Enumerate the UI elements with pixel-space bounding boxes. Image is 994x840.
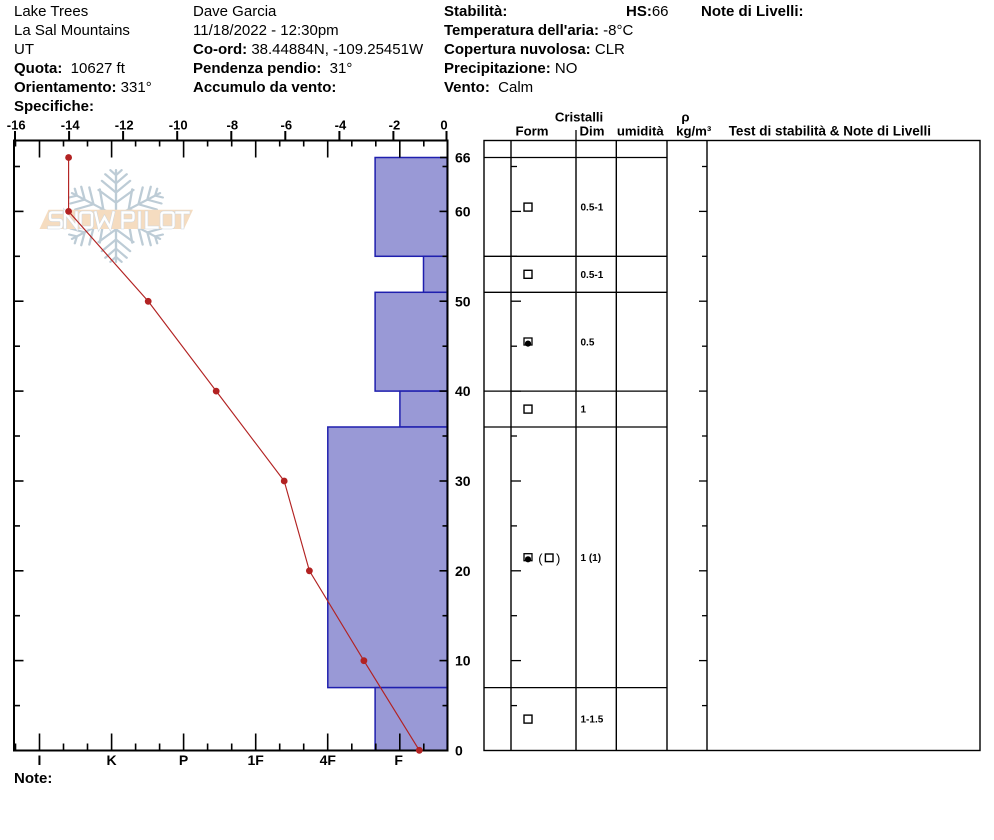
svg-text:Form: Form bbox=[516, 124, 549, 139]
svg-text:1F: 1F bbox=[248, 752, 265, 768]
svg-text:Dim: Dim bbox=[580, 124, 605, 139]
svg-text:1-1.5: 1-1.5 bbox=[581, 715, 604, 726]
svg-text:P: P bbox=[179, 752, 188, 768]
svg-text:0.5-1: 0.5-1 bbox=[581, 270, 604, 281]
svg-text:-12: -12 bbox=[115, 118, 134, 133]
svg-text:-10: -10 bbox=[169, 118, 188, 133]
svg-text:4F: 4F bbox=[320, 752, 337, 768]
svg-text:-14: -14 bbox=[61, 118, 81, 133]
svg-text:F: F bbox=[394, 752, 403, 768]
svg-text:20: 20 bbox=[455, 563, 471, 579]
svg-text:(: ( bbox=[538, 551, 543, 566]
svg-text:K: K bbox=[107, 752, 117, 768]
svg-text:60: 60 bbox=[455, 203, 471, 219]
svg-text:1 (1): 1 (1) bbox=[581, 553, 602, 564]
svg-text:-6: -6 bbox=[281, 118, 293, 133]
svg-text:-2: -2 bbox=[389, 118, 401, 133]
svg-text:0: 0 bbox=[455, 742, 463, 758]
svg-text:0.5-1: 0.5-1 bbox=[581, 203, 604, 214]
svg-text:-8: -8 bbox=[227, 118, 239, 133]
svg-text:Test di stabilità & Note di Li: Test di stabilità & Note di Livelli bbox=[729, 124, 931, 139]
svg-text:): ) bbox=[556, 551, 560, 566]
svg-text:10: 10 bbox=[455, 653, 471, 669]
svg-text:0: 0 bbox=[440, 118, 447, 133]
svg-text:50: 50 bbox=[455, 293, 471, 309]
svg-text:Cristalli: Cristalli bbox=[555, 109, 603, 124]
svg-text:kg/m³: kg/m³ bbox=[676, 124, 712, 139]
svg-text:40: 40 bbox=[455, 383, 471, 399]
svg-text:-4: -4 bbox=[335, 118, 347, 133]
svg-text:66: 66 bbox=[455, 150, 471, 166]
svg-text:umidità: umidità bbox=[617, 124, 665, 139]
svg-text:-16: -16 bbox=[7, 118, 26, 133]
svg-text:1: 1 bbox=[581, 405, 587, 416]
svg-text:30: 30 bbox=[455, 473, 471, 489]
svg-text:0.5: 0.5 bbox=[581, 338, 595, 349]
svg-text:I: I bbox=[38, 752, 42, 768]
svg-text:ρ: ρ bbox=[681, 109, 689, 124]
